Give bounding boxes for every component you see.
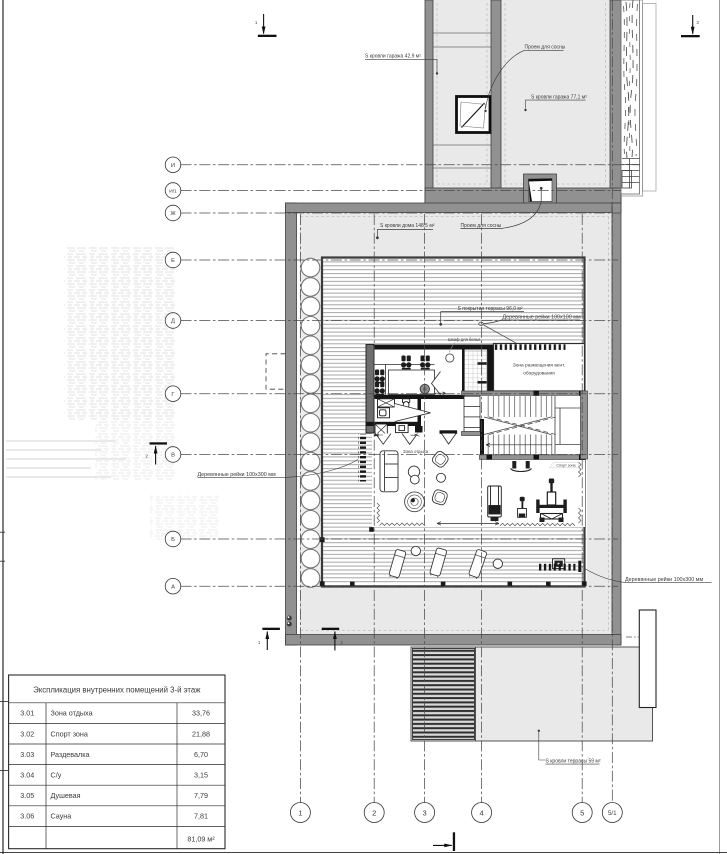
svg-text:7,81: 7,81	[194, 812, 208, 821]
svg-text:Деревянные рейки 100х300 мм: Деревянные рейки 100х300 мм	[625, 576, 703, 583]
svg-text:7,79: 7,79	[194, 791, 208, 800]
svg-text:S кровли террасы 59 м²: S кровли террасы 59 м²	[546, 758, 601, 764]
svg-text:S покрытия террасы 96,0 м²: S покрытия террасы 96,0 м²	[458, 306, 523, 312]
svg-text:3.03: 3.03	[20, 750, 34, 759]
svg-text:3.04: 3.04	[20, 771, 34, 780]
svg-text:S кровли гаража 77,1 м²: S кровли гаража 77,1 м²	[531, 94, 587, 100]
svg-text:Зона размещения вент.: Зона размещения вент.	[513, 363, 565, 369]
svg-text:33,76: 33,76	[192, 709, 210, 718]
svg-text:Душевая: Душевая	[51, 791, 81, 800]
svg-text:Е: Е	[171, 258, 175, 264]
svg-text:Деревянные рейки 100х300 мм: Деревянные рейки 100х300 мм	[198, 471, 276, 478]
svg-text:Экспликация внутренних помещен: Экспликация внутренних помещений 3-й эта…	[33, 685, 201, 694]
svg-text:2: 2	[372, 808, 376, 817]
svg-text:Б: Б	[171, 537, 175, 543]
svg-text:3.02: 3.02	[20, 729, 34, 738]
svg-text:А: А	[171, 584, 175, 590]
svg-text:оборудования: оборудования	[523, 371, 555, 377]
svg-text:3.06: 3.06	[20, 812, 34, 821]
svg-text:Проем для сосны: Проем для сосны	[461, 223, 502, 229]
svg-text:5/1: 5/1	[608, 810, 617, 817]
svg-text:Шкаф для белья: Шкаф для белья	[448, 337, 480, 342]
svg-text:Спорт зона: Спорт зона	[556, 464, 576, 468]
svg-text:3.05: 3.05	[20, 791, 34, 800]
svg-text:С/у: С/у	[51, 771, 62, 780]
svg-text:5: 5	[580, 808, 584, 817]
svg-text:3.01: 3.01	[20, 709, 34, 718]
svg-text:Спорт зона: Спорт зона	[51, 729, 88, 738]
svg-text:Зона отдыха: Зона отдыха	[51, 709, 93, 718]
svg-text:4: 4	[479, 808, 483, 817]
svg-text:Раздевалка: Раздевалка	[51, 750, 90, 759]
svg-text:И: И	[171, 163, 175, 169]
svg-text:S кровли дома 148,5 м²: S кровли дома 148,5 м²	[380, 223, 435, 229]
svg-text:Сауна: Сауна	[51, 812, 72, 821]
svg-text:6,70: 6,70	[194, 750, 208, 759]
svg-text:3,15: 3,15	[194, 771, 208, 780]
svg-text:Д: Д	[171, 319, 175, 325]
svg-text:Проем для сосны: Проем для сосны	[525, 45, 566, 51]
svg-text:И/1: И/1	[169, 189, 177, 195]
svg-text:Ж: Ж	[170, 211, 176, 217]
svg-text:S кровли гаража 42,9 м²: S кровли гаража 42,9 м²	[365, 54, 421, 60]
svg-text:81,09 м²: 81,09 м²	[187, 834, 215, 843]
svg-text:21,88: 21,88	[192, 729, 210, 738]
svg-text:1: 1	[298, 808, 302, 817]
svg-text:Деревянные рейки 100х100 мм: Деревянные рейки 100х100 мм	[503, 313, 581, 320]
svg-text:В: В	[171, 453, 175, 459]
svg-text:3: 3	[422, 808, 426, 817]
